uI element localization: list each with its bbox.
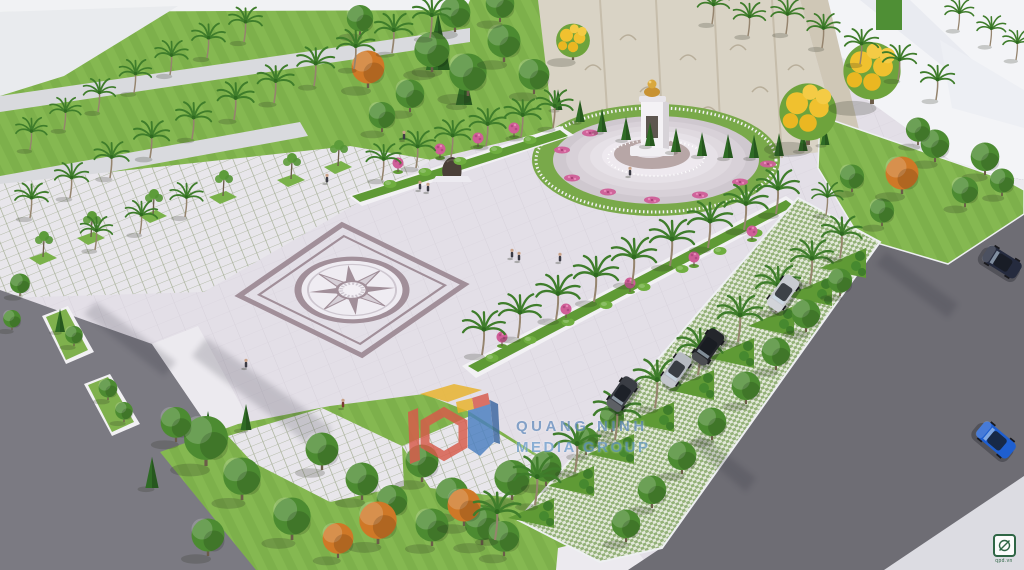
corner-logo: qpd.vn [986,534,1022,564]
hedge-bush [486,354,499,362]
hedge-bush [638,283,651,291]
flower-patch [644,197,660,204]
hedge-bush [714,247,727,255]
flower-patch [760,161,776,168]
scene-canvas [0,0,1024,570]
flower-patch [600,189,616,196]
hedge-bush [600,301,613,309]
pink-topiary [689,252,700,269]
green-wall [876,0,902,30]
flower-patch [692,192,708,199]
hedge-bush [524,136,537,144]
pink-topiary [747,226,758,243]
flower-patch [564,175,580,182]
hedge-bush [490,146,503,154]
aerial-plaza-render: QUANG NINH MEDIA GROUP qpd.vn [0,0,1024,570]
corner-logo-text: qpd.vn [986,558,1022,564]
hedge-bush [419,168,432,176]
pink-topiary [561,304,572,321]
circle-slash-icon [997,538,1012,553]
hedge-bush [676,265,689,273]
flower-patch [554,147,570,154]
hedge-bush [454,157,467,165]
hedge-bush [524,336,537,344]
corner-logo-box [993,534,1016,557]
hedge-bush [384,180,397,188]
